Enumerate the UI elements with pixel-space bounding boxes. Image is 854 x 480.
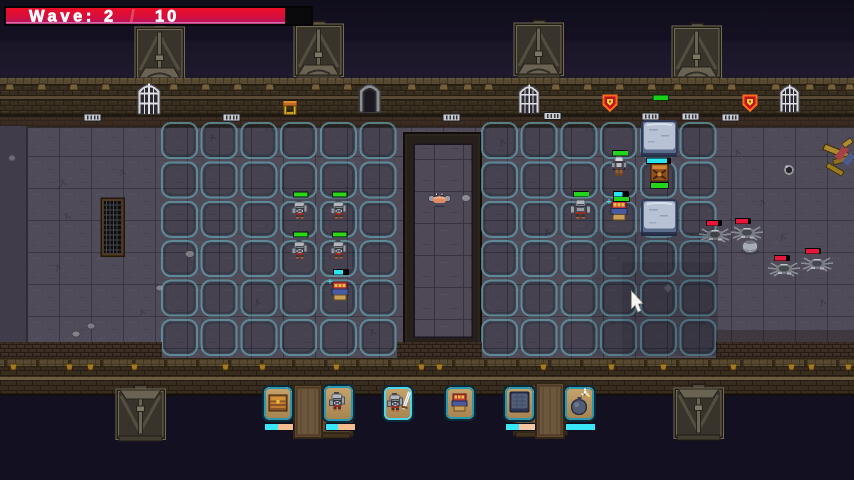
- svg-text:Wave:: Wave:: [29, 8, 95, 26]
- svg-text:10: 10: [155, 8, 179, 26]
- svg-text:/: /: [130, 8, 135, 26]
- svg-text:2: 2: [104, 8, 113, 26]
